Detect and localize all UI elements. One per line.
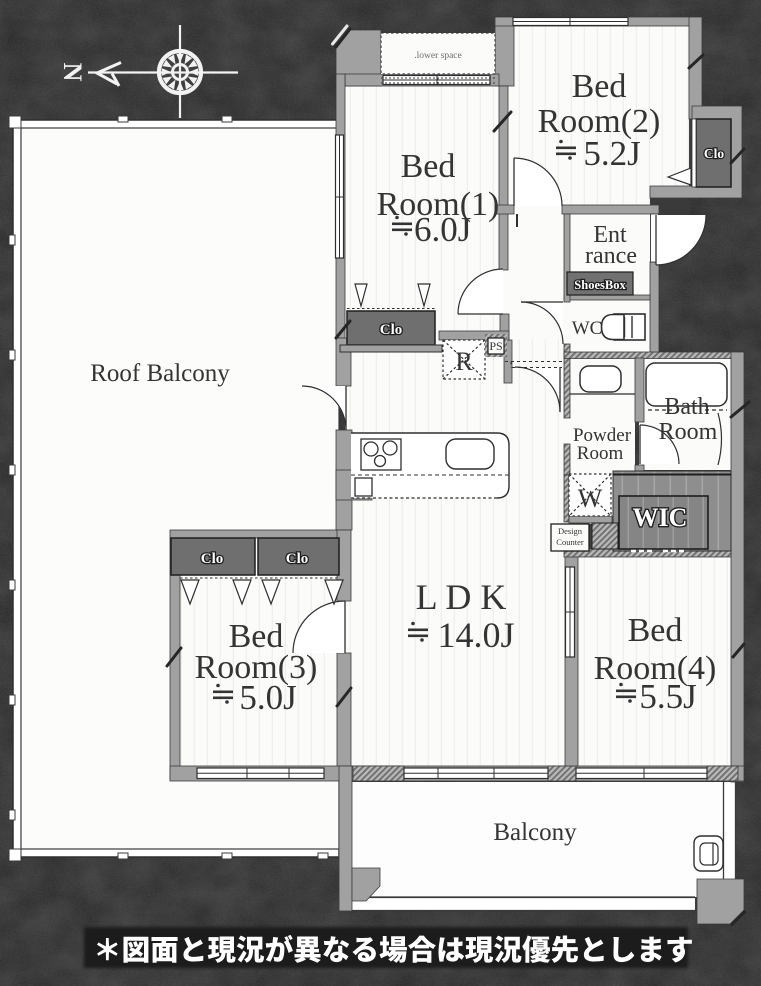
svg-text:.lower space: .lower space xyxy=(414,51,461,61)
svg-text:ShoesBox: ShoesBox xyxy=(574,278,626,292)
svg-text:Counter: Counter xyxy=(556,537,584,547)
svg-text:Design: Design xyxy=(558,526,583,536)
svg-text:Bed: Bed xyxy=(572,68,627,105)
svg-text:5.2J: 5.2J xyxy=(583,134,640,173)
svg-text:Balcony: Balcony xyxy=(493,819,577,846)
svg-text:PS: PS xyxy=(489,339,502,353)
svg-text:rance: rance xyxy=(585,243,637,269)
svg-text:Clo: Clo xyxy=(201,551,224,567)
svg-text:WC: WC xyxy=(572,318,603,339)
svg-text:Bed: Bed xyxy=(628,612,683,649)
svg-text:5.5J: 5.5J xyxy=(639,677,696,716)
svg-text:Clo: Clo xyxy=(704,146,725,161)
svg-text:N: N xyxy=(58,63,87,82)
svg-text:WIC: WIC xyxy=(633,503,688,532)
svg-text:Clo: Clo xyxy=(286,551,309,567)
svg-text:Clo: Clo xyxy=(380,322,403,338)
svg-text:Bed: Bed xyxy=(401,148,456,185)
svg-text:14.0J: 14.0J xyxy=(437,615,514,655)
svg-text:L D K: L D K xyxy=(416,577,507,617)
svg-text:Roof Balcony: Roof Balcony xyxy=(90,360,230,387)
svg-text:Room: Room xyxy=(577,443,624,464)
svg-text:6.0J: 6.0J xyxy=(414,210,471,249)
svg-text:Room: Room xyxy=(659,419,718,445)
svg-text:Bath: Bath xyxy=(664,394,709,420)
svg-text:R: R xyxy=(455,347,473,376)
svg-text:5.0J: 5.0J xyxy=(239,678,296,717)
svg-text:W: W xyxy=(578,484,603,513)
